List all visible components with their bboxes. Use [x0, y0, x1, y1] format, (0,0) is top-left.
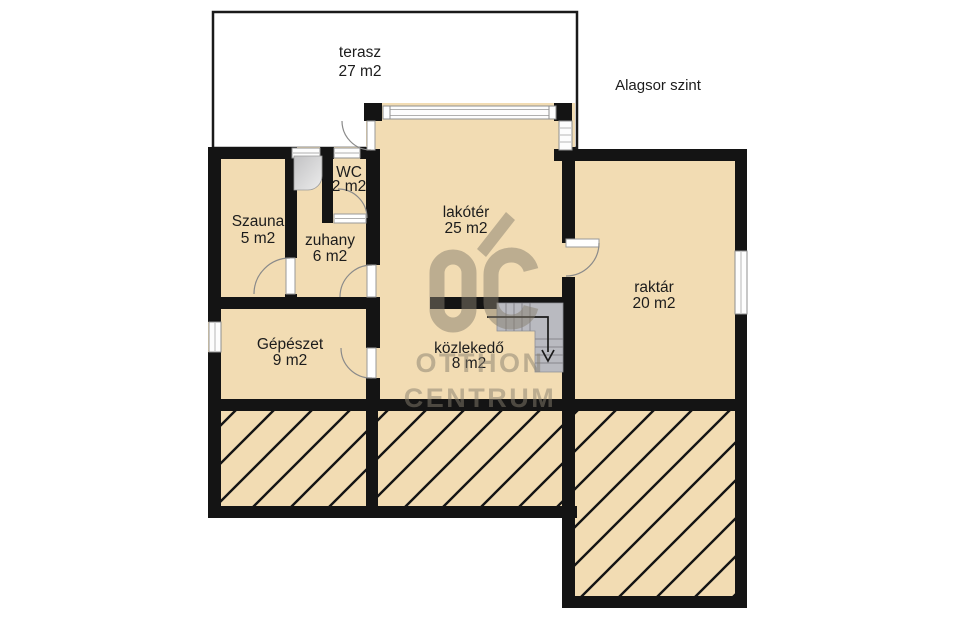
- room-label-lakoter-area: 25 m2: [444, 220, 487, 237]
- wall-segment: [735, 314, 747, 608]
- room-label-gepeszet-area: 9 m2: [273, 352, 307, 369]
- wall-segment: [208, 352, 221, 518]
- shower-tray: [294, 156, 322, 190]
- floor-plan-image: Alagsor szint terasz 27 m2 Szauna 5 m2 W…: [0, 0, 960, 624]
- wall-segment: [366, 149, 380, 265]
- room-label-raktar-area: 20 m2: [632, 295, 675, 312]
- watermark-line1: OTTHON: [416, 348, 545, 378]
- wall-segment: [562, 277, 575, 411]
- hatched-area-middle: [366, 399, 577, 518]
- room-label-szauna-name: Szauna: [232, 213, 285, 230]
- room-label-raktar-name: raktár: [634, 279, 674, 296]
- hatched-area-right: [562, 399, 747, 608]
- floor-title: Alagsor szint: [615, 77, 702, 94]
- room-label-szauna-area: 5 m2: [241, 230, 275, 247]
- wall-segment: [364, 103, 382, 121]
- wall-segment: [208, 147, 221, 322]
- hatched-area-left: [208, 399, 380, 518]
- room-label-gepeszet-name: Gépészet: [257, 336, 324, 353]
- wall-segment: [562, 596, 747, 608]
- window-wc-top: [334, 148, 360, 158]
- wall-segment: [735, 149, 747, 251]
- watermark-line2: CENTRUM: [404, 383, 557, 413]
- wall-segment: [554, 103, 572, 121]
- wall-segment: [208, 506, 577, 518]
- wall-segment: [366, 297, 380, 348]
- room-label-terasz-area: 27 m2: [338, 63, 381, 80]
- wall-segment: [554, 149, 747, 161]
- wall-segment: [208, 147, 292, 159]
- wall-segment: [562, 399, 575, 608]
- window-lakoter-right: [559, 121, 572, 150]
- wall-segment: [562, 147, 575, 243]
- window-raktar-right: [735, 251, 747, 314]
- room-label-terasz-name: terasz: [339, 44, 381, 61]
- wall-segment: [366, 399, 378, 518]
- window-gepeszet-left: [209, 322, 221, 352]
- hatched-areas: [208, 399, 747, 608]
- room-label-wc-area: 2 m2: [332, 178, 366, 195]
- floor-plan-svg: Alagsor szint terasz 27 m2 Szauna 5 m2 W…: [0, 0, 960, 624]
- room-label-zuhany-name: zuhany: [305, 232, 355, 249]
- window-lakoter-top: [383, 106, 556, 119]
- wall-segment: [208, 297, 380, 309]
- room-label-zuhany-area: 6 m2: [313, 248, 347, 265]
- room-label-lakoter-name: lakótér: [443, 204, 490, 221]
